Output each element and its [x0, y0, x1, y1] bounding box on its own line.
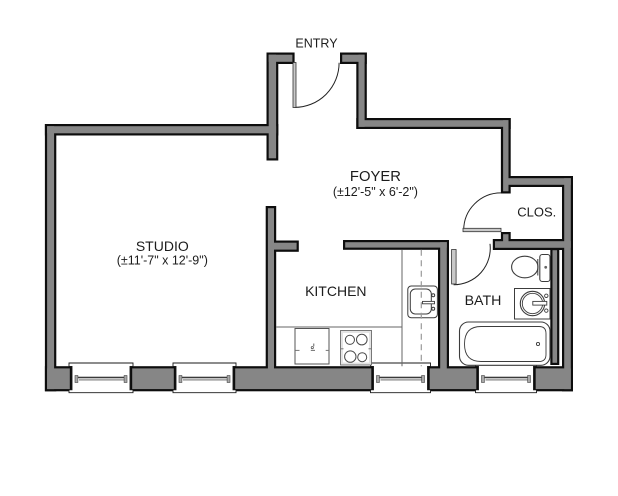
svg-text:CLOS.: CLOS. [517, 205, 556, 220]
svg-text:(±11'-7" x 12'-9"): (±11'-7" x 12'-9") [117, 254, 208, 268]
svg-text:BATH: BATH [465, 293, 502, 309]
svg-text:(±12'-5" x 6'-2"): (±12'-5" x 6'-2") [333, 185, 418, 199]
svg-text:KITCHEN: KITCHEN [305, 283, 366, 299]
svg-text:FOYER: FOYER [350, 169, 401, 185]
svg-text:ENTRY: ENTRY [295, 37, 338, 51]
svg-text:STUDIO: STUDIO [136, 238, 189, 254]
